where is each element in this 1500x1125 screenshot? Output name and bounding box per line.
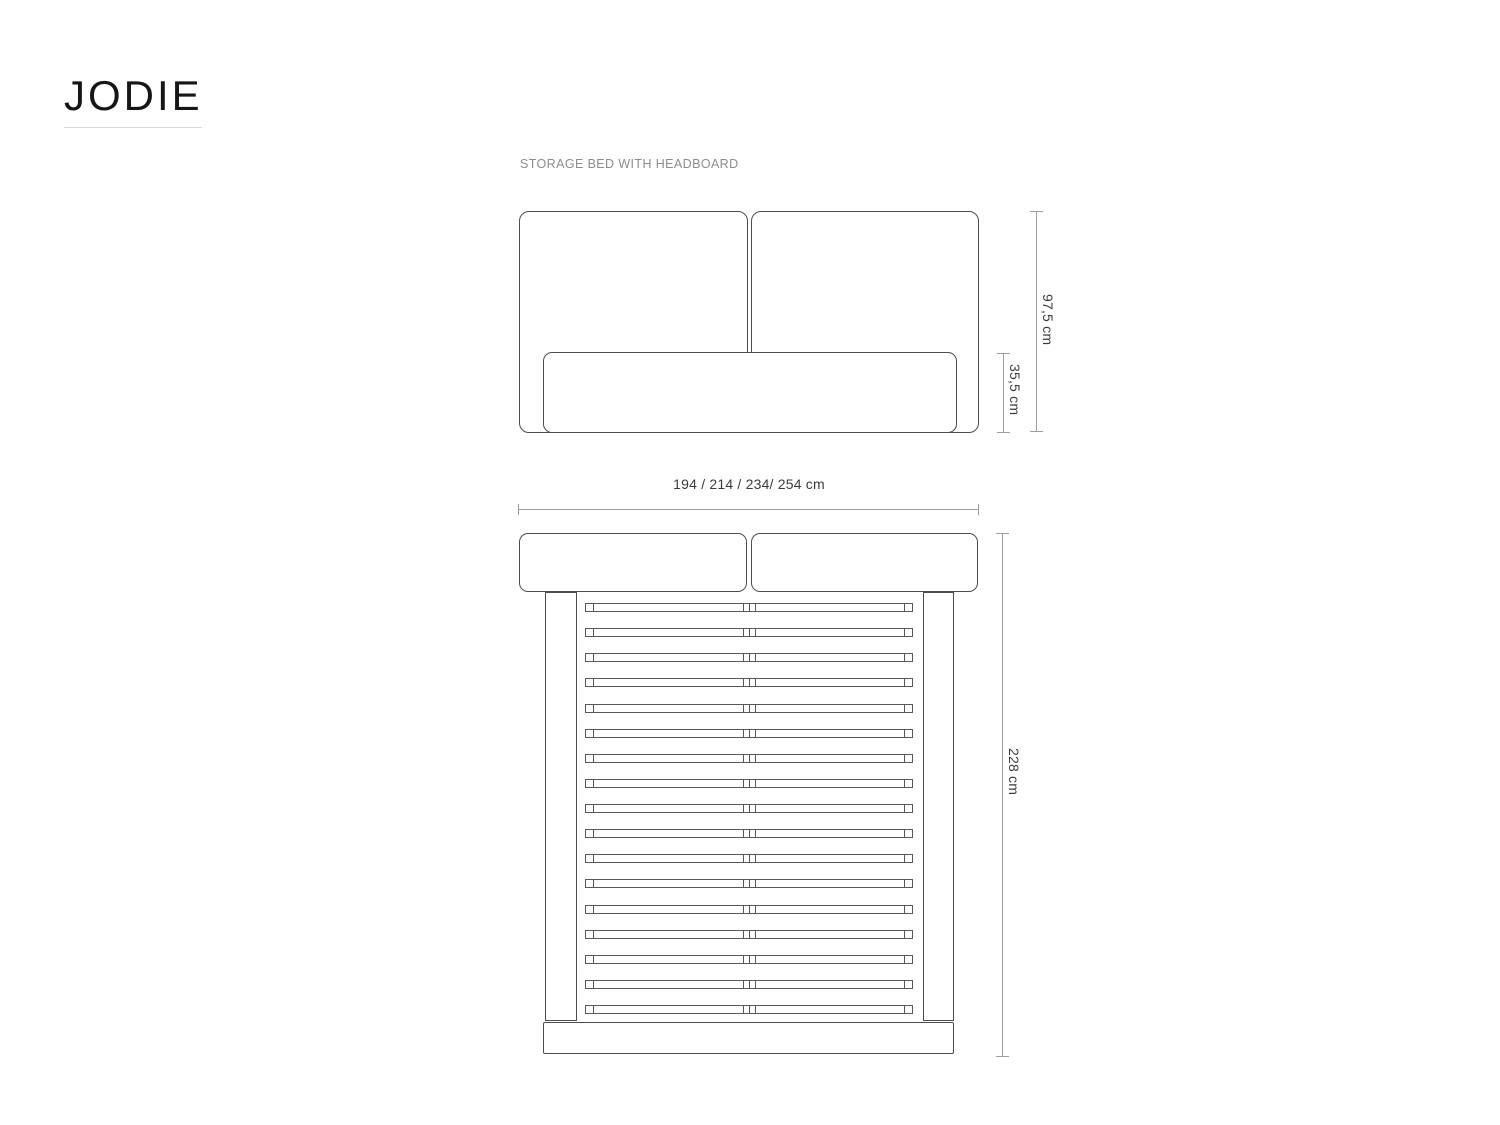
slat-center-divider	[749, 880, 750, 887]
dimension-tick	[978, 504, 979, 515]
slat-end-cap	[904, 956, 905, 963]
slat-center-divider	[755, 654, 756, 661]
side-rail-right	[923, 592, 954, 1021]
slat-end-cap	[593, 956, 594, 963]
slat-end-cap	[904, 1006, 905, 1013]
slat-center-divider	[743, 705, 744, 712]
slat-end-cap	[593, 654, 594, 661]
slat-center-divider	[749, 679, 750, 686]
slat-center-divider	[743, 830, 744, 837]
dimension-tick	[997, 353, 1010, 354]
slat	[585, 754, 913, 763]
side-rail-left	[545, 592, 577, 1021]
slat-center-divider	[743, 730, 744, 737]
slat-end-cap	[593, 855, 594, 862]
slat-end-cap	[904, 880, 905, 887]
slat-center-divider	[749, 956, 750, 963]
slat-end-cap	[593, 629, 594, 636]
slat-end-cap	[593, 730, 594, 737]
dimension-tick	[1030, 211, 1043, 212]
dimension-line	[1036, 211, 1037, 431]
slat-center-divider	[743, 654, 744, 661]
slat-center-divider	[743, 805, 744, 812]
slat	[585, 678, 913, 687]
slat-end-cap	[593, 705, 594, 712]
slat-center-divider	[755, 730, 756, 737]
slat-center-divider	[749, 604, 750, 611]
slat-end-cap	[904, 730, 905, 737]
slat-center-divider	[749, 1006, 750, 1013]
slat-center-divider	[755, 679, 756, 686]
slat-center-divider	[743, 906, 744, 913]
slat-center-divider	[755, 981, 756, 988]
spec-sheet-page: { "brand": { "name": "JODIE" }, "product…	[0, 0, 1500, 1125]
slat-center-divider	[749, 780, 750, 787]
slat	[585, 653, 913, 662]
slat-end-cap	[593, 981, 594, 988]
slat-end-cap	[593, 780, 594, 787]
dimension-value-label: 35,5 cm	[1007, 364, 1023, 415]
slat	[585, 628, 913, 637]
bed-base-front-panel	[543, 352, 957, 433]
slat-center-divider	[743, 931, 744, 938]
slat-center-divider	[743, 981, 744, 988]
slat	[585, 804, 913, 813]
dimension-tick	[996, 533, 1009, 534]
slat-center-divider	[755, 931, 756, 938]
slat-center-divider	[755, 755, 756, 762]
headboard-top-left-panel	[519, 533, 747, 592]
slat-end-cap	[593, 931, 594, 938]
slat-end-cap	[593, 679, 594, 686]
dimension-value-label: 228 cm	[1006, 748, 1022, 795]
slat-center-divider	[749, 931, 750, 938]
slat-end-cap	[904, 780, 905, 787]
slat-center-divider	[755, 629, 756, 636]
slat-center-divider	[755, 855, 756, 862]
slat-center-divider	[743, 880, 744, 887]
slat	[585, 829, 913, 838]
slat-end-cap	[904, 705, 905, 712]
slat	[585, 704, 913, 713]
slat	[585, 930, 913, 939]
dimension-line	[1002, 533, 1003, 1056]
headboard-top-right-panel	[751, 533, 978, 592]
slat	[585, 905, 913, 914]
slat-center-divider	[743, 629, 744, 636]
slat-center-divider	[749, 981, 750, 988]
slat-end-cap	[904, 755, 905, 762]
slat	[585, 854, 913, 863]
slat-end-cap	[904, 805, 905, 812]
slat-center-divider	[749, 830, 750, 837]
brand-logo: JODIE	[64, 72, 203, 120]
dimension-value-label: 97,5 cm	[1040, 294, 1056, 345]
slat-center-divider	[749, 805, 750, 812]
slat-center-divider	[755, 805, 756, 812]
slat-center-divider	[749, 730, 750, 737]
slat-center-divider	[743, 780, 744, 787]
slat-end-cap	[904, 931, 905, 938]
slat	[585, 955, 913, 964]
slat-end-cap	[904, 679, 905, 686]
footboard-panel	[543, 1022, 954, 1054]
slat-end-cap	[593, 805, 594, 812]
slat	[585, 779, 913, 788]
slat-end-cap	[904, 830, 905, 837]
dimension-tick	[996, 1056, 1009, 1057]
slat-center-divider	[755, 906, 756, 913]
slat-center-divider	[749, 705, 750, 712]
slat-end-cap	[904, 604, 905, 611]
slat-center-divider	[749, 855, 750, 862]
slat-end-cap	[593, 880, 594, 887]
dimension-tick	[997, 432, 1010, 433]
slat-end-cap	[593, 906, 594, 913]
slat-center-divider	[743, 1006, 744, 1013]
slat-end-cap	[593, 1006, 594, 1013]
dimension-tick	[1030, 431, 1043, 432]
slat-end-cap	[593, 604, 594, 611]
slat-end-cap	[904, 654, 905, 661]
slat-end-cap	[904, 855, 905, 862]
slat	[585, 1005, 913, 1014]
slat-center-divider	[755, 780, 756, 787]
slat-center-divider	[755, 604, 756, 611]
slat	[585, 729, 913, 738]
slat-center-divider	[755, 1006, 756, 1013]
slat-center-divider	[755, 705, 756, 712]
slat-center-divider	[749, 654, 750, 661]
slat	[585, 603, 913, 612]
slat-end-cap	[593, 830, 594, 837]
slat-center-divider	[743, 755, 744, 762]
slat-center-divider	[749, 906, 750, 913]
slat-center-divider	[743, 855, 744, 862]
slat	[585, 980, 913, 989]
dimension-value-label: 194 / 214 / 234/ 254 cm	[519, 476, 979, 492]
dimension-line	[518, 509, 979, 510]
dimension-line	[1003, 353, 1004, 432]
slat-center-divider	[743, 956, 744, 963]
slat-grid	[585, 603, 913, 1014]
product-type-label: STORAGE BED WITH HEADBOARD	[520, 157, 739, 171]
slat-end-cap	[904, 981, 905, 988]
slat-center-divider	[749, 629, 750, 636]
slat	[585, 879, 913, 888]
slat-end-cap	[593, 755, 594, 762]
slat-center-divider	[755, 830, 756, 837]
slat-center-divider	[743, 604, 744, 611]
slat-center-divider	[749, 755, 750, 762]
slat-end-cap	[904, 906, 905, 913]
dimension-tick	[518, 504, 519, 515]
logo-underline	[64, 127, 202, 128]
slat-end-cap	[904, 629, 905, 636]
slat-center-divider	[755, 956, 756, 963]
slat-center-divider	[755, 880, 756, 887]
slat-center-divider	[743, 679, 744, 686]
